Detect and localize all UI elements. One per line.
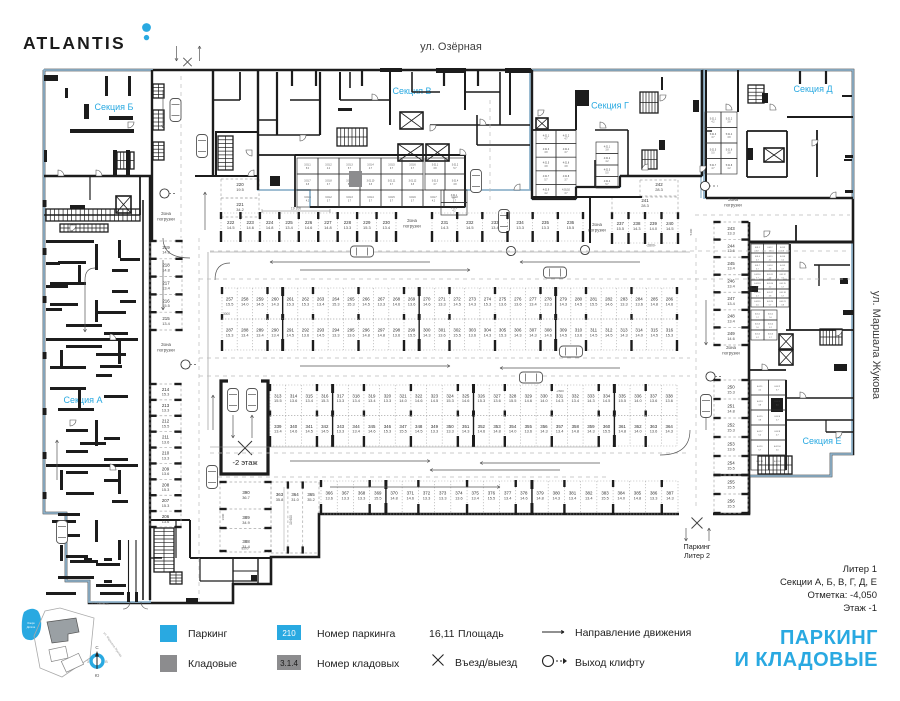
svg-text:15.5: 15.5	[408, 332, 416, 337]
svg-text:13.3: 13.3	[438, 301, 446, 306]
svg-text:15.3: 15.3	[384, 429, 392, 434]
svg-text:13.4: 13.4	[162, 321, 170, 326]
svg-text:погрузки: погрузки	[722, 350, 740, 355]
svg-text:6.02.9: 6.02.9	[757, 446, 763, 448]
svg-text:15.5: 15.5	[162, 424, 170, 429]
svg-text:ПАРКИНГ: ПАРКИНГ	[780, 627, 878, 649]
svg-text:15.3: 15.3	[302, 301, 310, 306]
svg-text:4.7: 4.7	[756, 259, 759, 261]
svg-text:13.6: 13.6	[302, 332, 310, 337]
svg-text:6.01.16: 6.01.16	[754, 292, 760, 294]
svg-text:6.01.5: 6.01.5	[768, 256, 773, 258]
svg-text:4.7: 4.7	[769, 337, 772, 339]
svg-text:Секция Г: Секция Г	[591, 101, 629, 111]
svg-text:13.4: 13.4	[727, 318, 735, 323]
svg-text:Паркинг: Паркинг	[188, 628, 227, 640]
svg-text:14.3: 14.3	[587, 429, 595, 434]
svg-text:13.3: 13.3	[620, 301, 628, 306]
svg-text:3.8: 3.8	[769, 295, 772, 297]
svg-text:13.6: 13.6	[575, 332, 583, 337]
svg-text:5.01.2: 5.01.2	[726, 118, 733, 120]
svg-text:5.7: 5.7	[781, 295, 784, 297]
svg-text:3.7: 3.7	[756, 268, 759, 270]
svg-text:16,11: 16,11	[429, 628, 455, 640]
svg-text:5.01.8: 5.01.8	[726, 165, 733, 167]
svg-text:4.01.3: 4.01.3	[604, 169, 611, 171]
svg-text:13.6: 13.6	[408, 301, 416, 306]
svg-text:6.01.7: 6.01.7	[755, 265, 760, 267]
svg-text:13.3: 13.3	[650, 495, 658, 500]
svg-text:Ю: Ю	[95, 673, 100, 678]
svg-text:6.01.2: 6.01.2	[768, 247, 773, 249]
svg-text:13.6: 13.6	[347, 332, 355, 337]
svg-text:14.3: 14.3	[468, 301, 476, 306]
svg-text:3.01.1: 3.01.1	[451, 195, 458, 197]
svg-text:13.4: 13.4	[285, 225, 293, 230]
svg-text:погрузки: погрузки	[157, 347, 175, 352]
svg-text:Направление движения: Направление движения	[575, 627, 691, 639]
svg-text:3.01.8: 3.01.8	[325, 181, 332, 183]
svg-text:13.6: 13.6	[393, 332, 401, 337]
svg-text:14.8: 14.8	[324, 225, 332, 230]
svg-text:Зона: Зона	[161, 342, 172, 347]
svg-text:5.0: 5.0	[756, 327, 759, 329]
svg-text:14.6: 14.6	[478, 429, 486, 434]
svg-text:5.7: 5.7	[756, 317, 759, 319]
svg-text:5.7: 5.7	[769, 304, 772, 306]
svg-text:15.5: 15.5	[590, 301, 598, 306]
svg-text:ATLANTIS: ATLANTIS	[23, 33, 126, 53]
svg-text:15.3: 15.3	[446, 398, 454, 403]
svg-text:14.0: 14.0	[509, 429, 517, 434]
svg-text:6.02.6: 6.02.6	[774, 416, 780, 418]
svg-text:15.3: 15.3	[363, 225, 371, 230]
svg-text:14.0: 14.0	[241, 301, 249, 306]
svg-text:15.5: 15.5	[374, 495, 382, 500]
svg-text:6.01.3: 6.01.3	[780, 247, 785, 249]
svg-text:6.01.6: 6.01.6	[768, 334, 773, 336]
svg-text:-2600: -2600	[556, 389, 564, 393]
svg-text:3.01.10: 3.01.10	[367, 181, 375, 183]
svg-text:14.5: 14.5	[305, 429, 313, 434]
svg-text:Кладовые: Кладовые	[188, 658, 237, 670]
svg-text:5.01.4: 5.01.4	[726, 134, 733, 136]
svg-text:3.01.4: 3.01.4	[367, 197, 374, 199]
svg-text:14.5: 14.5	[415, 429, 423, 434]
svg-text:Отметка: -4,050: Отметка: -4,050	[808, 590, 877, 601]
svg-text:14.5: 14.5	[453, 301, 461, 306]
svg-text:14.6: 14.6	[368, 429, 376, 434]
svg-text:Номер паркинга: Номер паркинга	[317, 628, 395, 640]
svg-text:14.6: 14.6	[406, 495, 414, 500]
svg-text:14.3: 14.3	[441, 225, 449, 230]
svg-text:15.5: 15.5	[616, 226, 624, 231]
svg-text:14.5: 14.5	[590, 332, 598, 337]
svg-text:15.3: 15.3	[499, 332, 507, 337]
svg-text:13.3: 13.3	[337, 429, 345, 434]
svg-text:3.01.12: 3.01.12	[409, 181, 417, 183]
svg-text:6.01.1: 6.01.1	[755, 314, 760, 316]
svg-text:5.0: 5.0	[756, 304, 759, 306]
svg-text:14.6: 14.6	[666, 301, 674, 306]
svg-text:6.02.10: 6.02.10	[774, 446, 782, 448]
svg-text:13.6: 13.6	[162, 471, 170, 476]
svg-text:14.3: 14.3	[587, 398, 595, 403]
svg-text:13.3: 13.3	[342, 495, 350, 500]
svg-text:15.3: 15.3	[478, 398, 486, 403]
svg-text:Секция А: Секция А	[63, 395, 102, 405]
svg-text:14.6: 14.6	[462, 398, 470, 403]
svg-text:14.5: 14.5	[575, 301, 583, 306]
svg-text:3.01.2: 3.01.2	[451, 207, 458, 209]
svg-text:ул. Озёрная: ул. Озёрная	[420, 41, 482, 53]
svg-text:Номер кладовых: Номер кладовых	[317, 658, 400, 670]
svg-text:14.6: 14.6	[423, 301, 431, 306]
svg-text:13.6: 13.6	[455, 495, 463, 500]
svg-text:8500: 8500	[241, 547, 248, 551]
svg-text:4.2: 4.2	[756, 337, 759, 339]
svg-text:3.01.3: 3.01.3	[432, 181, 439, 183]
svg-text:14.5: 14.5	[317, 332, 325, 337]
svg-text:4.2: 4.2	[769, 259, 772, 261]
svg-text:13.4: 13.4	[556, 429, 564, 434]
svg-text:14.3: 14.3	[514, 332, 522, 337]
svg-text:13.6: 13.6	[438, 332, 446, 337]
svg-text:14.0: 14.0	[649, 226, 657, 231]
svg-text:14.0: 14.0	[635, 332, 643, 337]
svg-text:6.01.8: 6.01.8	[768, 265, 773, 267]
svg-text:4.01.5: 4.01.5	[543, 163, 550, 165]
svg-text:13.3: 13.3	[358, 495, 366, 500]
svg-text:6.01.12: 6.01.12	[780, 274, 786, 276]
svg-text:Зона: Зона	[726, 345, 737, 350]
svg-text:13.6: 13.6	[665, 398, 673, 403]
svg-text:6.01.15: 6.01.15	[780, 283, 786, 285]
svg-text:Этаж -1: Этаж -1	[843, 603, 877, 614]
svg-text:13.3: 13.3	[446, 429, 454, 434]
svg-text:14.6: 14.6	[246, 225, 254, 230]
svg-text:6.01.20: 6.01.20	[767, 301, 773, 303]
svg-text:4.01.6: 4.01.6	[563, 163, 570, 165]
svg-text:15.3: 15.3	[321, 398, 329, 403]
svg-text:З: З	[87, 660, 89, 664]
svg-text:4.7: 4.7	[756, 295, 759, 297]
svg-text:3.01.2: 3.01.2	[325, 197, 332, 199]
svg-text:Въезд/выезд: Въезд/выезд	[455, 657, 517, 669]
svg-text:Литер 1: Литер 1	[843, 564, 877, 575]
svg-text:13.3: 13.3	[337, 398, 345, 403]
svg-text:14.6: 14.6	[520, 495, 528, 500]
svg-text:3.01.1: 3.01.1	[304, 165, 311, 167]
svg-text:13.6: 13.6	[499, 301, 507, 306]
svg-text:28.3: 28.3	[641, 203, 649, 208]
svg-text:13.4: 13.4	[368, 398, 376, 403]
svg-text:Секция Е: Секция Е	[802, 436, 841, 446]
svg-text:4.01.4: 4.01.4	[604, 181, 611, 183]
svg-text:3600: 3600	[221, 513, 225, 520]
svg-text:14.3: 14.3	[484, 332, 492, 337]
svg-text:15.5: 15.5	[727, 503, 735, 508]
svg-text:15.5: 15.5	[488, 495, 496, 500]
svg-text:14.5: 14.5	[666, 226, 674, 231]
svg-text:19 100: 19 100	[291, 207, 301, 211]
svg-text:14.8: 14.8	[634, 495, 642, 500]
svg-text:6.01.9: 6.01.9	[780, 265, 785, 267]
svg-text:13.4: 13.4	[305, 398, 313, 403]
svg-text:15.3: 15.3	[162, 487, 170, 492]
svg-text:5.01.7: 5.01.7	[710, 165, 717, 167]
svg-text:14.0: 14.0	[634, 429, 642, 434]
svg-text:5.01.3: 5.01.3	[710, 134, 717, 136]
svg-text:13.3: 13.3	[344, 225, 352, 230]
svg-text:6.01.4: 6.01.4	[755, 256, 760, 258]
svg-text:4.01.10: 4.01.10	[562, 190, 570, 192]
svg-text:13.6: 13.6	[162, 439, 170, 444]
svg-text:5.0: 5.0	[781, 259, 784, 261]
svg-text:13.4: 13.4	[471, 495, 479, 500]
svg-text:13.4: 13.4	[727, 266, 735, 271]
svg-text:31.0: 31.0	[291, 497, 299, 502]
svg-text:-2 этаж: -2 этаж	[233, 458, 258, 467]
svg-text:14.5: 14.5	[605, 332, 613, 337]
svg-text:6.02.7: 6.02.7	[757, 431, 763, 433]
svg-text:13.3: 13.3	[544, 301, 552, 306]
svg-text:15.3: 15.3	[484, 301, 492, 306]
svg-text:14.6: 14.6	[415, 398, 423, 403]
svg-text:14.5: 14.5	[256, 301, 264, 306]
svg-text:14.6: 14.6	[524, 398, 532, 403]
svg-text:14.3: 14.3	[423, 332, 431, 337]
svg-text:13.4: 13.4	[274, 429, 282, 434]
svg-text:3.01.5: 3.01.5	[388, 197, 395, 199]
svg-text:3.01.3: 3.01.3	[346, 165, 353, 167]
svg-text:13.3: 13.3	[423, 495, 431, 500]
svg-text:15.3: 15.3	[727, 389, 735, 394]
svg-text:14.6: 14.6	[305, 225, 313, 230]
svg-text:3.7: 3.7	[756, 277, 759, 279]
svg-text:Долгое: Долгое	[27, 625, 36, 629]
svg-text:14.8: 14.8	[493, 429, 501, 434]
svg-text:14.5: 14.5	[650, 332, 658, 337]
svg-text:3.01.7: 3.01.7	[430, 197, 437, 199]
svg-text:15.5: 15.5	[274, 398, 282, 403]
svg-text:13.6: 13.6	[162, 519, 170, 524]
svg-text:6.01.2: 6.01.2	[768, 314, 773, 316]
svg-text:14.8: 14.8	[571, 429, 579, 434]
svg-text:15.5: 15.5	[226, 301, 234, 306]
svg-text:6.02.5: 6.02.5	[757, 416, 763, 418]
svg-text:14.8: 14.8	[377, 332, 385, 337]
svg-text:6.01.13: 6.01.13	[754, 283, 760, 285]
svg-text:4.01.2: 4.01.2	[604, 158, 611, 160]
svg-text:И КЛАДОВЫЕ: И КЛАДОВЫЕ	[734, 649, 878, 671]
svg-text:14.6: 14.6	[727, 336, 735, 341]
svg-text:3.01.11: 3.01.11	[388, 181, 396, 183]
svg-text:14.5: 14.5	[321, 429, 329, 434]
svg-text:14.5: 14.5	[603, 398, 611, 403]
svg-text:15.5: 15.5	[567, 225, 575, 230]
svg-text:15.3: 15.3	[162, 503, 170, 508]
svg-text:13.3: 13.3	[541, 225, 549, 230]
svg-text:14.6: 14.6	[393, 301, 401, 306]
svg-text:14.5: 14.5	[466, 225, 474, 230]
svg-text:13.6: 13.6	[468, 332, 476, 337]
svg-text:6.01.21: 6.01.21	[780, 301, 786, 303]
svg-text:5.01.1: 5.01.1	[710, 118, 717, 120]
svg-text:погрузки: погрузки	[403, 223, 421, 228]
svg-text:Секции А, Б, В, Г, Д, Е: Секции А, Б, В, Г, Д, Е	[780, 577, 877, 588]
svg-text:36.7: 36.7	[242, 495, 250, 500]
svg-text:13.4: 13.4	[317, 301, 325, 306]
svg-text:35.2: 35.2	[307, 497, 315, 502]
svg-text:14.8: 14.8	[650, 301, 658, 306]
svg-text:5.7: 5.7	[781, 286, 784, 288]
svg-text:35.8: 35.8	[276, 497, 284, 502]
svg-text:15.3: 15.3	[347, 301, 355, 306]
svg-text:13.6: 13.6	[514, 301, 522, 306]
svg-text:13.3: 13.3	[516, 225, 524, 230]
svg-text:3.01.7: 3.01.7	[304, 181, 311, 183]
svg-text:15.5: 15.5	[509, 398, 517, 403]
svg-text:15.5: 15.5	[618, 398, 626, 403]
svg-text:4.01.1: 4.01.1	[543, 135, 550, 137]
svg-text:3.8: 3.8	[781, 304, 784, 306]
svg-text:3.01.3: 3.01.3	[346, 197, 353, 199]
svg-text:3.01.5: 3.01.5	[388, 165, 395, 167]
svg-text:4.01.8: 4.01.8	[563, 176, 570, 178]
svg-text:13.4: 13.4	[585, 495, 593, 500]
svg-text:10 600: 10 600	[289, 515, 293, 525]
svg-text:6.01.6: 6.01.6	[780, 256, 785, 258]
svg-text:3.01.2: 3.01.2	[325, 165, 332, 167]
svg-text:13.4: 13.4	[491, 225, 499, 230]
svg-text:6.02.1: 6.02.1	[757, 386, 763, 388]
svg-text:14.3: 14.3	[271, 301, 279, 306]
svg-text:13.4: 13.4	[162, 285, 170, 290]
svg-text:Паркинг: Паркинг	[684, 542, 711, 551]
svg-text:3.01.6: 3.01.6	[409, 165, 416, 167]
svg-text:13.4: 13.4	[504, 495, 512, 500]
svg-text:14.8: 14.8	[390, 495, 398, 500]
svg-text:13.6: 13.6	[325, 495, 333, 500]
svg-text:14.3: 14.3	[633, 226, 641, 231]
svg-text:4.7: 4.7	[781, 268, 784, 270]
svg-text:Зона: Зона	[161, 211, 172, 216]
svg-text:4.01.3: 4.01.3	[543, 149, 550, 151]
svg-text:6.01.17: 6.01.17	[767, 292, 773, 294]
svg-text:5.01.5: 5.01.5	[710, 149, 717, 151]
svg-text:13.3: 13.3	[431, 429, 439, 434]
svg-text:6.02.4: 6.02.4	[774, 401, 780, 403]
svg-text:15.3: 15.3	[162, 392, 170, 397]
svg-text:14.5: 14.5	[227, 225, 235, 230]
svg-text:14.5: 14.5	[559, 332, 567, 337]
svg-text:13.4: 13.4	[382, 225, 390, 230]
svg-text:13.6: 13.6	[493, 398, 501, 403]
svg-text:13.3: 13.3	[162, 408, 170, 413]
svg-text:погрузки: погрузки	[157, 216, 175, 221]
svg-text:13.4: 13.4	[271, 332, 279, 337]
svg-text:14.8: 14.8	[266, 225, 274, 230]
svg-text:3.01.1: 3.01.1	[304, 197, 311, 199]
svg-text:ул. Маршала Жукова: ул. Маршала Жукова	[870, 291, 882, 400]
svg-text:13.4: 13.4	[727, 301, 735, 306]
svg-text:15.3: 15.3	[286, 301, 294, 306]
svg-text:13.4: 13.4	[727, 283, 735, 288]
svg-text:14.0: 14.0	[540, 398, 548, 403]
svg-text:14.0: 14.0	[399, 398, 407, 403]
svg-text:6.02.2: 6.02.2	[774, 386, 780, 388]
svg-text:6.01.14: 6.01.14	[767, 283, 773, 285]
svg-text:14.5: 14.5	[286, 332, 294, 337]
svg-text:5.0: 5.0	[769, 317, 772, 319]
svg-text:6.01.19: 6.01.19	[754, 301, 760, 303]
svg-text:13.4: 13.4	[569, 495, 577, 500]
svg-text:13.4: 13.4	[352, 398, 360, 403]
svg-text:15.3: 15.3	[332, 301, 340, 306]
svg-text:14.6: 14.6	[544, 332, 552, 337]
svg-text:13.6: 13.6	[524, 429, 532, 434]
svg-text:15.5: 15.5	[601, 495, 609, 500]
svg-text:15.5: 15.5	[603, 429, 611, 434]
svg-text:15.3: 15.3	[226, 332, 234, 337]
svg-text:13.6: 13.6	[650, 429, 658, 434]
svg-text:13.3: 13.3	[332, 332, 340, 337]
svg-text:19.5: 19.5	[236, 187, 244, 192]
svg-text:14.3: 14.3	[540, 429, 548, 434]
svg-text:3.01.1: 3.01.1	[432, 165, 439, 167]
svg-text:6.01.3: 6.01.3	[755, 324, 760, 326]
svg-text:14.3: 14.3	[556, 398, 564, 403]
svg-text:4.01.7: 4.01.7	[543, 176, 550, 178]
svg-text:6.01.4: 6.01.4	[768, 324, 773, 326]
svg-text:14.6: 14.6	[290, 429, 298, 434]
svg-text:5.01.6: 5.01.6	[726, 149, 733, 151]
svg-text:4.01.9: 4.01.9	[543, 190, 550, 192]
svg-text:13.3: 13.3	[439, 495, 447, 500]
svg-text:Выход клифту: Выход клифту	[575, 657, 645, 669]
svg-text:14.8: 14.8	[362, 332, 370, 337]
svg-text:погрузки: погрузки	[724, 202, 742, 207]
svg-text:4.01.4: 4.01.4	[563, 149, 570, 151]
svg-text:Озеро: Озеро	[27, 621, 35, 625]
svg-text:4.2: 4.2	[769, 327, 772, 329]
svg-text:13.4: 13.4	[241, 332, 249, 337]
svg-text:6.01.18: 6.01.18	[780, 292, 786, 294]
svg-text:-2800-: -2800-	[646, 244, 656, 248]
svg-text:Секция Д: Секция Д	[793, 84, 832, 94]
svg-text:Зона: Зона	[407, 218, 418, 223]
svg-text:28.3: 28.3	[655, 187, 663, 192]
svg-text:14.3: 14.3	[559, 301, 567, 306]
svg-text:13.6: 13.6	[290, 398, 298, 403]
svg-text:13.3: 13.3	[377, 301, 385, 306]
svg-text:15.5: 15.5	[727, 484, 735, 489]
svg-text:210: 210	[282, 629, 296, 638]
svg-text:Секция Б: Секция Б	[95, 102, 134, 112]
svg-text:3.8: 3.8	[756, 286, 759, 288]
svg-text:6.01.10: 6.01.10	[754, 274, 760, 276]
svg-text:15.5: 15.5	[727, 465, 735, 470]
svg-text:6.01.11: 6.01.11	[767, 274, 773, 276]
svg-text:погрузки: погрузки	[588, 227, 606, 232]
svg-text:13.6: 13.6	[650, 398, 658, 403]
svg-text:6.01.1: 6.01.1	[755, 247, 760, 249]
svg-text:13.4: 13.4	[571, 398, 579, 403]
svg-text:3.8: 3.8	[769, 268, 772, 270]
svg-text:6.02.3: 6.02.3	[757, 401, 763, 403]
svg-text:3.01.2: 3.01.2	[452, 165, 459, 167]
